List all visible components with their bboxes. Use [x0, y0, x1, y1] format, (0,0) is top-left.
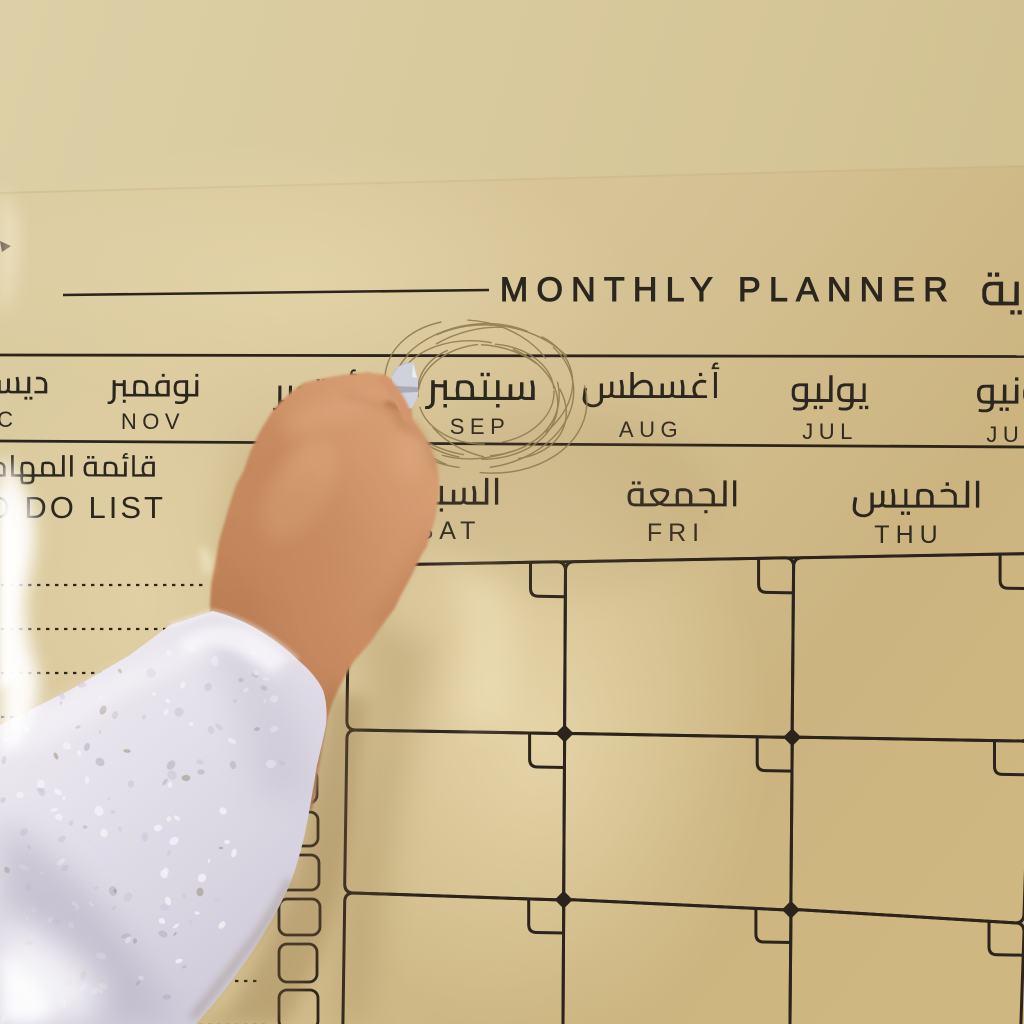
- svg-text:JUL: JUL: [802, 419, 858, 444]
- svg-text:THU: THU: [874, 521, 943, 549]
- svg-text:MONTHLY PLANNER: MONTHLY PLANNER: [500, 271, 956, 309]
- svg-text:DEC: DEC: [0, 407, 18, 432]
- svg-text:NOV: NOV: [121, 409, 185, 434]
- svg-text:JUN: JUN: [986, 422, 1024, 447]
